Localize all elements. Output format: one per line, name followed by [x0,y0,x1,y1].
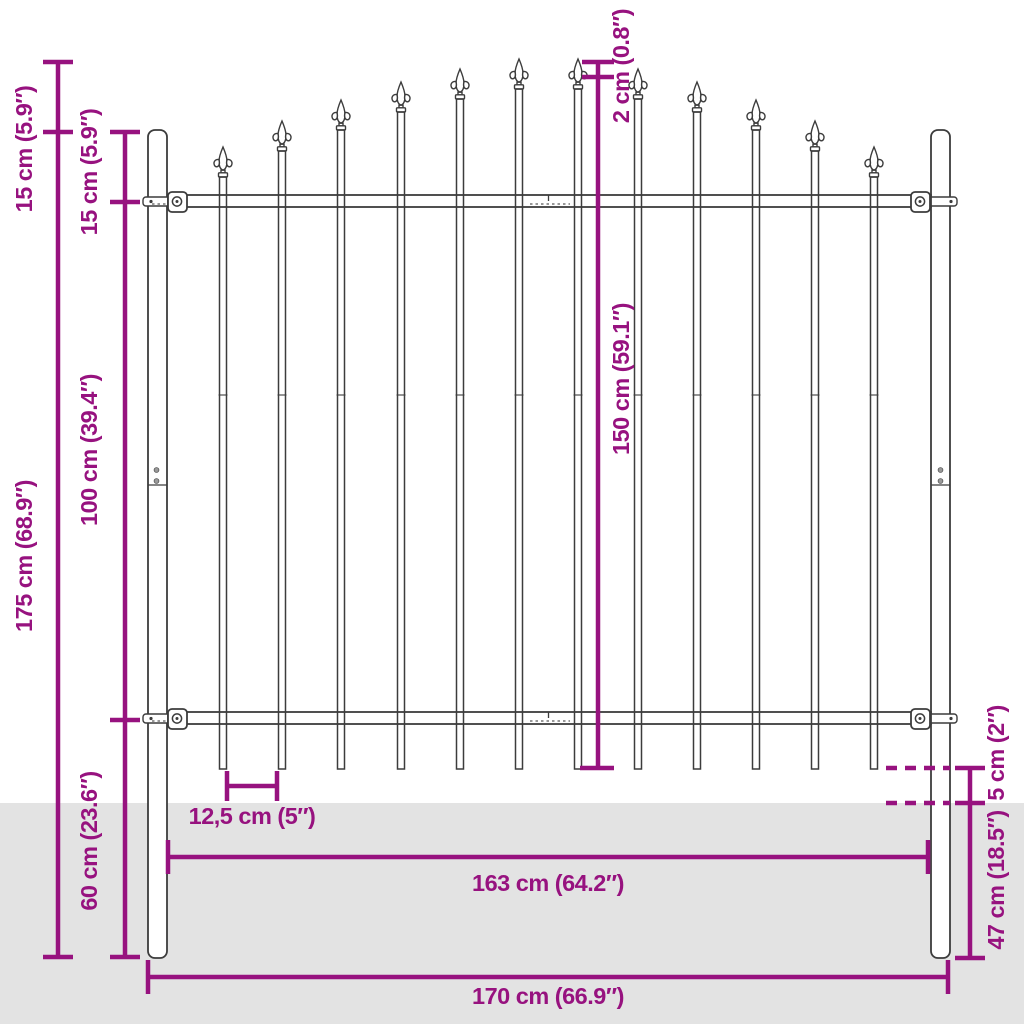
spear-finial [392,82,410,112]
bar-shaft [220,177,227,769]
left-post-body [148,130,167,958]
left-post-hole-upper [154,468,159,473]
right-post-body [931,130,950,958]
bar-shaft [338,130,345,769]
bottom-rail-right-bolt-center [919,717,922,720]
top-rail [143,192,957,212]
dim-label-post-in-ground: 47 cm (18.5″) [983,810,1009,949]
fence-bar [214,147,232,769]
spear-finial [451,69,469,99]
bar-shaft [753,130,760,769]
spear-finial [865,147,883,177]
top-rail-right-bolt-center [919,200,922,203]
fence-bar [510,59,528,769]
spear-finial [806,121,824,151]
fence-bar [865,147,883,769]
bottom-rail-left-tab-bolt [149,717,152,720]
spear-finial [214,147,232,177]
diagram-canvas: 15 cm (5.9″) 175 cm (68.9″) 15 cm (5.9″)… [0,0,1024,1024]
bar-shaft [812,151,819,769]
bar-shaft [694,112,701,769]
top-rail-right-tab-bolt [949,200,952,203]
dim-bar-height: 2 cm (0.8″) 150 cm (59.1″) [580,9,634,768]
spear-finial [688,82,706,112]
dim-label-post-top-to-top-rail: 15 cm (5.9″) [76,109,102,236]
dim-label-bar-spacing: 12,5 cm (5″) [189,803,316,829]
fence-bars [214,59,883,769]
fence-bar [688,82,706,769]
fence-bar [392,82,410,769]
fence-bar [451,69,469,769]
top-rail-right-tab [929,197,957,206]
fence-bar [806,121,824,769]
right-post [931,130,950,958]
dim-label-lower-section-height: 60 cm (23.6″) [76,771,102,910]
bar-shaft [575,89,582,769]
top-rail-left-tab-bolt [149,200,152,203]
dim-label-total-width: 170 cm (66.9″) [472,983,624,1009]
bottom-rail [143,709,957,729]
top-rail-body [168,195,931,207]
fence-bar [569,59,587,769]
top-rail-left-tab [143,197,170,206]
dim-label-spear-tip-to-post-top: 15 cm (5.9″) [11,86,37,213]
top-rail-left-bolt-center [176,200,179,203]
dim-label-rail-width: 163 cm (64.2″) [472,870,624,896]
bar-shaft [516,89,523,769]
spear-finial [510,59,528,89]
left-post [148,130,167,958]
bottom-rail-left-bolt-center [176,717,179,720]
left-post-hole-lower [154,479,159,484]
fence-dimension-diagram: 15 cm (5.9″) 175 cm (68.9″) 15 cm (5.9″)… [0,0,1024,1024]
fence-bar [273,121,291,769]
dim-bar-spacing: 12,5 cm (5″) [189,771,316,829]
bar-shaft [398,112,405,769]
spear-finial [332,100,350,130]
spear-finial [273,121,291,151]
bottom-rail-left-tab [143,714,170,723]
dim-label-rail-to-rail: 100 cm (39.4″) [76,374,102,526]
bar-shaft [279,151,286,769]
bottom-rail-body [168,712,931,724]
right-post-hole-upper [938,468,943,473]
spear-finial [747,100,765,130]
dim-label-bar-to-ground: 5 cm (2″) [983,705,1009,801]
dim-label-spear-step: 2 cm (0.8″) [608,9,634,123]
dim-label-bar-height: 150 cm (59.1″) [608,303,634,455]
bottom-rail-right-tab-bolt [949,717,952,720]
bar-shaft [871,177,878,769]
right-post-hole-lower [938,479,943,484]
bottom-rail-right-tab [929,714,957,723]
dim-label-total-height: 175 cm (68.9″) [11,480,37,632]
